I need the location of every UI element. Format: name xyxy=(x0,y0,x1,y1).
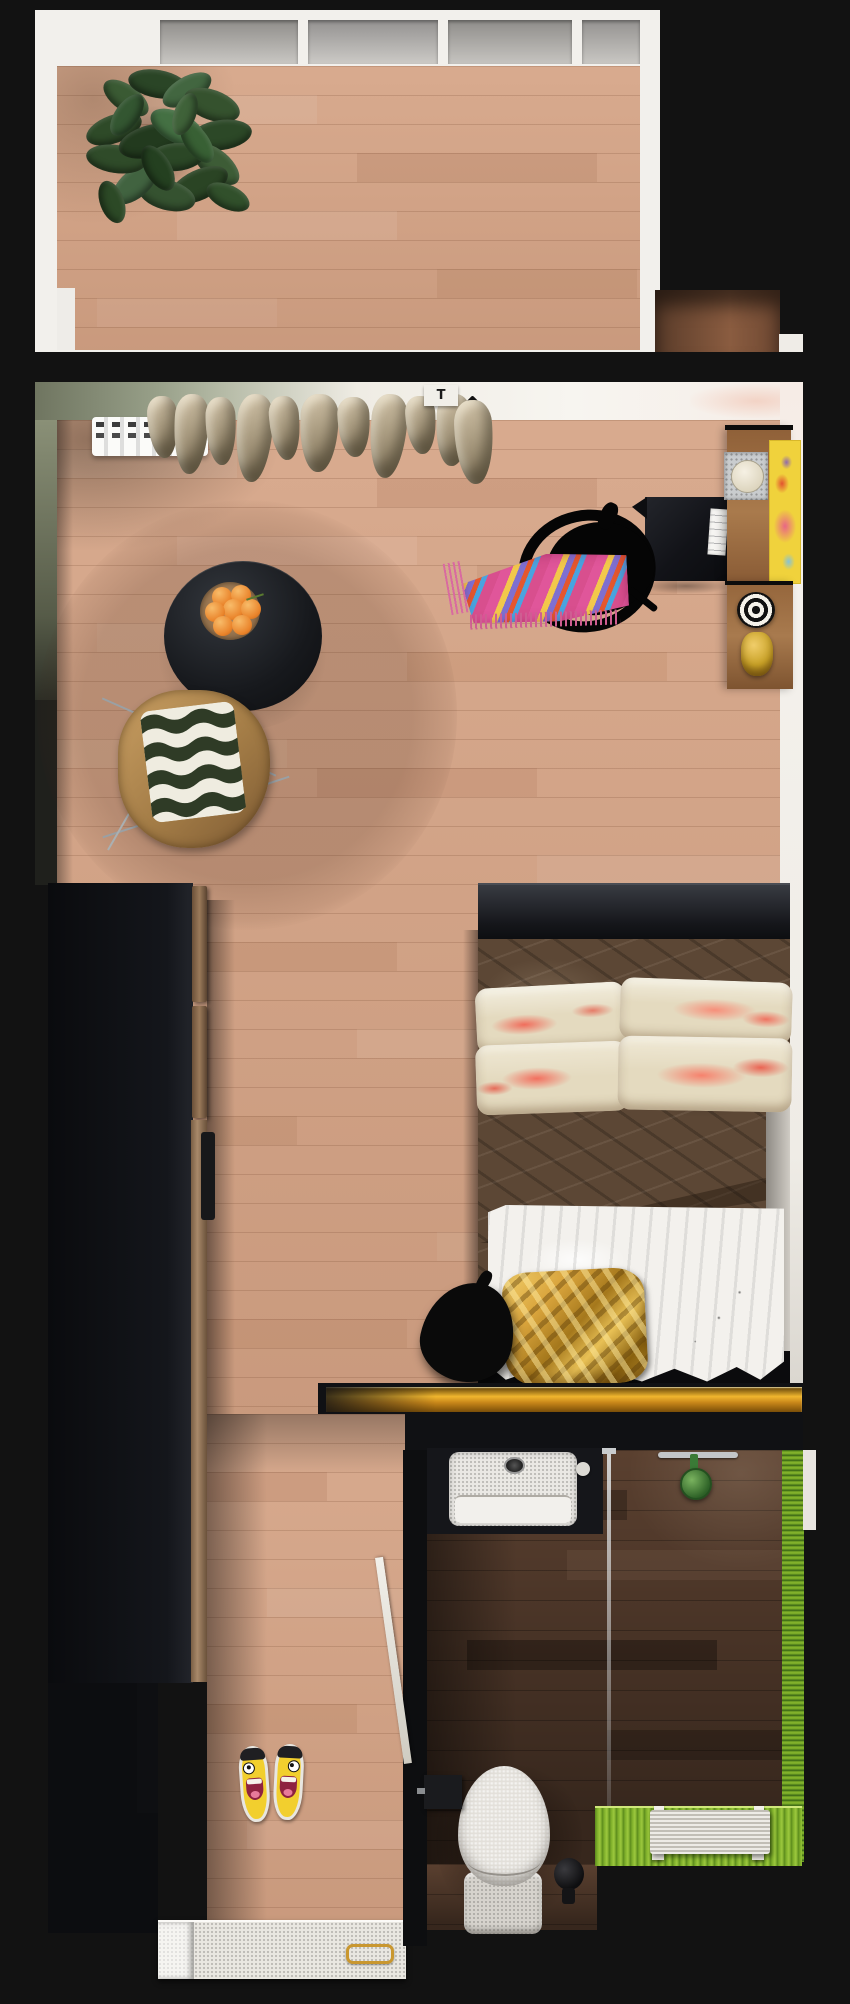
bullseye-decor[interactable] xyxy=(737,592,775,628)
terrazzo-step[interactable] xyxy=(158,1920,406,1979)
glass-wall-gold-edge[interactable] xyxy=(326,1387,802,1412)
art-frame[interactable] xyxy=(724,452,768,500)
step-lip xyxy=(158,1922,194,1979)
balcony-corner-wall xyxy=(779,334,803,352)
toilet[interactable] xyxy=(455,1764,553,1940)
orange-fruit xyxy=(213,616,233,636)
sink-drain-icon xyxy=(504,1457,525,1474)
sink-vanity[interactable] xyxy=(427,1448,603,1534)
orange-fruit xyxy=(232,615,252,635)
toilet-seat-seam xyxy=(467,1844,541,1876)
bathroom-partition-wall xyxy=(403,1450,427,1946)
window-icon[interactable] xyxy=(582,20,640,64)
desk-paper[interactable] xyxy=(707,508,728,555)
window-icon[interactable] xyxy=(160,20,298,64)
flip-flop-right xyxy=(272,1743,305,1820)
sink-basin xyxy=(449,1452,577,1526)
paper-holder-pin xyxy=(417,1788,425,1794)
wardrobe-handle[interactable] xyxy=(201,1132,215,1220)
wave-cushion xyxy=(140,701,247,824)
step-gold-handle xyxy=(346,1944,394,1964)
bed-pillow xyxy=(619,977,793,1045)
shower-glass-cap xyxy=(602,1448,616,1454)
toilet-brush[interactable] xyxy=(552,1856,586,1908)
potted-plant[interactable] xyxy=(70,65,240,230)
art-plate xyxy=(731,460,764,493)
shelf-bracket xyxy=(725,581,793,585)
thermostat-label: T xyxy=(437,388,446,403)
bed[interactable] xyxy=(478,883,790,1395)
thermostat-box[interactable]: T xyxy=(424,385,458,406)
poster[interactable] xyxy=(769,440,801,584)
gold-pillow[interactable] xyxy=(501,1266,649,1388)
flip-flop-left xyxy=(237,1745,271,1823)
shower-glass-panel xyxy=(607,1450,611,1815)
shower-head[interactable] xyxy=(678,1452,710,1498)
window-icon[interactable] xyxy=(308,20,438,64)
bed-pillow xyxy=(475,1040,629,1115)
flip-flops[interactable] xyxy=(240,1744,308,1824)
wardrobe-door-edge xyxy=(192,1006,207,1118)
hallway-floor xyxy=(207,1414,405,1924)
balcony-floor-shadowed xyxy=(655,290,780,352)
mosaic-wall-strip xyxy=(782,1450,804,1862)
apartment-floorplan: T xyxy=(0,0,850,2004)
curtains[interactable] xyxy=(148,394,498,490)
window-icon[interactable] xyxy=(448,20,572,64)
bed-pillow xyxy=(617,1035,792,1112)
balcony-wall-footing xyxy=(57,288,75,350)
headboard xyxy=(478,883,790,941)
wardrobe[interactable] xyxy=(48,883,193,1683)
rattan-chair[interactable] xyxy=(112,686,280,854)
lower-cabinet-step xyxy=(137,1683,158,1813)
wardrobe-door-edge xyxy=(192,886,207,1002)
shower-bench[interactable] xyxy=(650,1810,770,1856)
bathroom-right-wall xyxy=(803,1450,816,1530)
gold-figurine[interactable] xyxy=(741,632,773,676)
shelf-bracket xyxy=(725,425,793,430)
paper-holder[interactable] xyxy=(424,1775,462,1809)
sink-knob[interactable] xyxy=(576,1462,590,1476)
